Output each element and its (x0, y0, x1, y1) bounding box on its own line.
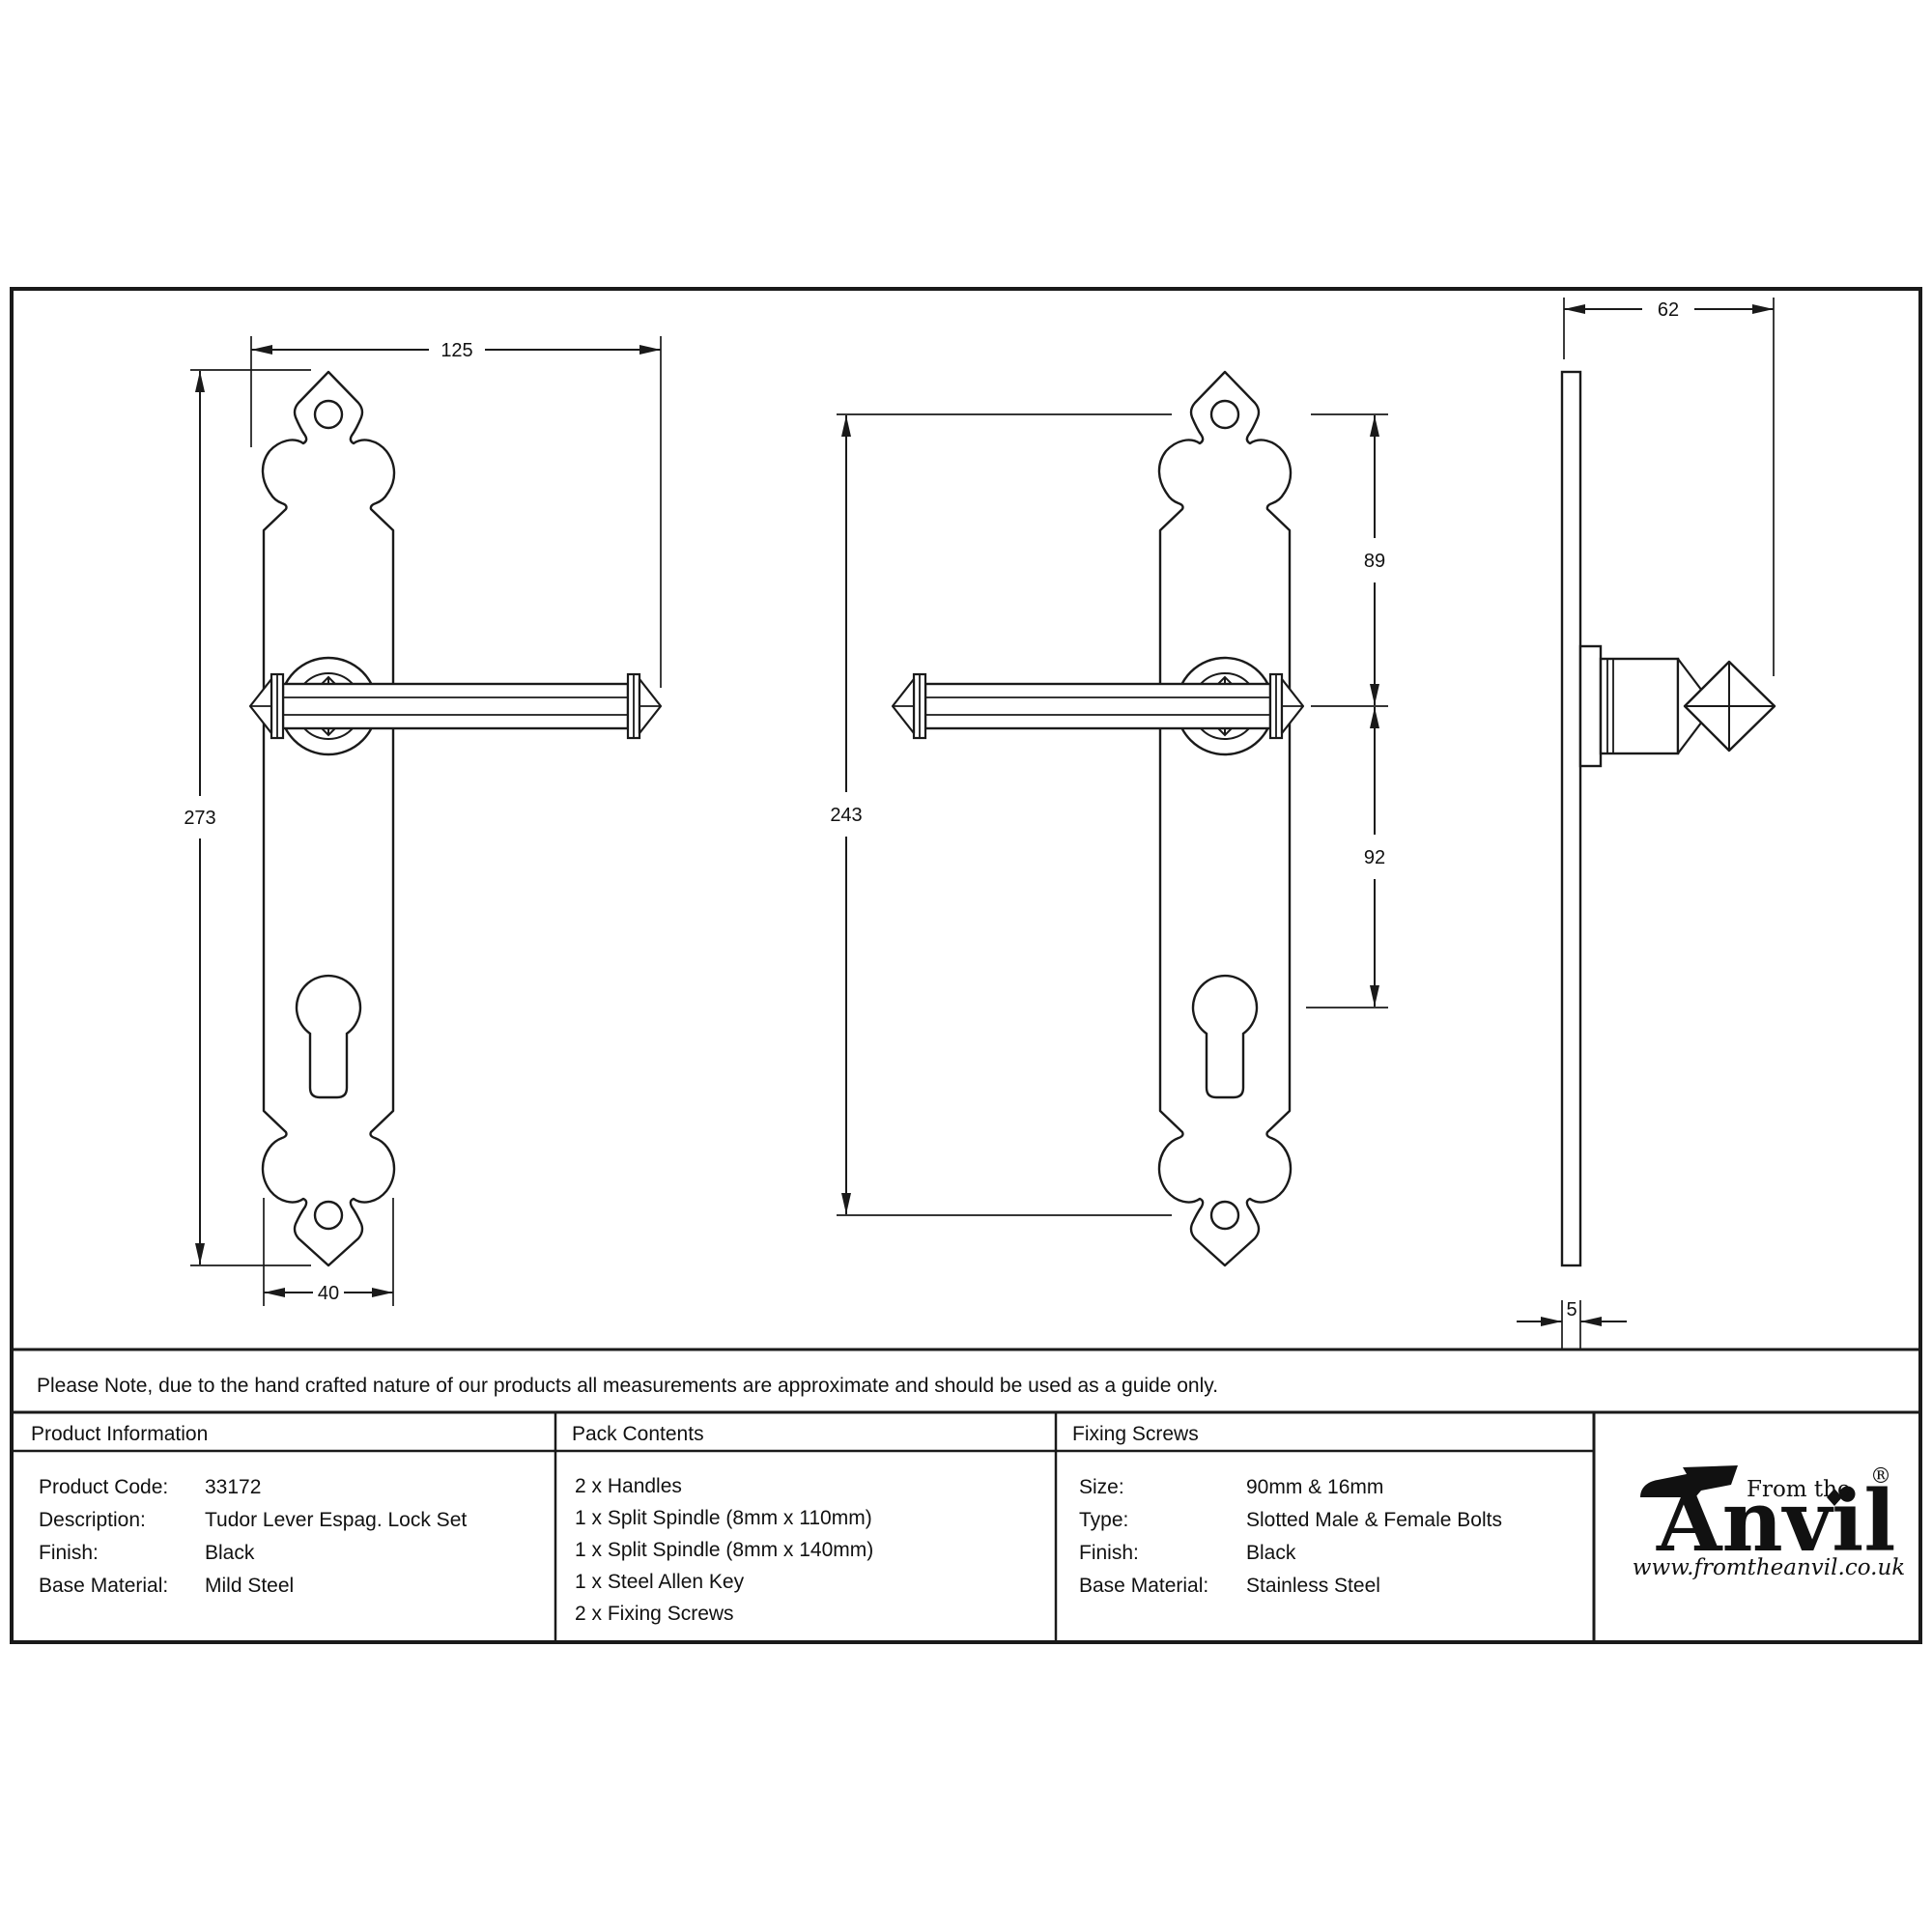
front-view-backplate (263, 372, 394, 1265)
technical-drawing-sheet: 125 273 40 (0, 0, 1932, 1932)
row-label: Product Code: (39, 1476, 168, 1498)
row-value: 33172 (205, 1476, 261, 1498)
product-information-section: Product Information Product Code: 33172 … (31, 1423, 467, 1597)
product-spec-sheet: 125 273 40 (0, 0, 1932, 1932)
dimension-spindle-to-keyhole: 92 (1364, 847, 1385, 868)
pack-item: 1 x Split Spindle (8mm x 110mm) (575, 1507, 872, 1529)
brand-website: www.fromtheanvil.co.uk (1633, 1555, 1905, 1580)
row-label: Description: (39, 1509, 146, 1531)
dimension-top-to-spindle: 89 (1364, 551, 1385, 572)
side-view-drawing: 62 5 (1517, 298, 1775, 1349)
back-view-dimensions (837, 414, 1388, 1215)
row-value: Stainless Steel (1246, 1575, 1380, 1597)
brand-logo: Anvil From the ® www.fromtheanvil.co.uk (1633, 1464, 1905, 1580)
front-view-dimensions (190, 336, 661, 1306)
section-title: Product Information (31, 1423, 208, 1445)
row-value: Black (205, 1542, 255, 1564)
row-value: 90mm & 16mm (1246, 1476, 1383, 1498)
row-value: Black (1246, 1542, 1296, 1564)
note-row: Please Note, due to the hand crafted nat… (12, 1350, 1920, 1397)
measurement-note: Please Note, due to the hand crafted nat… (37, 1375, 1218, 1397)
row-label: Base Material: (39, 1575, 168, 1597)
pack-item: 1 x Split Spindle (8mm x 140mm) (575, 1539, 873, 1561)
fixing-screws-section: Fixing Screws Size: 90mm & 16mm Type: Sl… (1072, 1423, 1502, 1597)
dimension-fixing-centres: 243 (830, 805, 862, 826)
row-label: Finish: (1079, 1542, 1139, 1564)
dimension-plate-thickness: 5 (1566, 1299, 1577, 1321)
back-view-backplate (1159, 372, 1291, 1265)
dimension-projection: 62 (1658, 299, 1679, 321)
registered-trademark-icon: ® (1870, 1464, 1891, 1489)
section-title: Pack Contents (572, 1423, 704, 1445)
row-value: Slotted Male & Female Bolts (1246, 1509, 1502, 1531)
brand-tagline: From the (1747, 1477, 1851, 1502)
side-view-backplate (1562, 372, 1580, 1265)
side-view-handle (1580, 646, 1775, 766)
pack-item: 2 x Handles (575, 1475, 682, 1497)
pack-item: 2 x Fixing Screws (575, 1603, 734, 1625)
front-view-drawing: 125 273 40 (184, 336, 661, 1306)
dimension-plate-height: 273 (184, 808, 215, 829)
dimension-handle-length: 125 (440, 340, 472, 361)
back-view-lever-handle (893, 658, 1303, 754)
row-label: Base Material: (1079, 1575, 1208, 1597)
pack-contents-section: Pack Contents 2 x Handles 1 x Split Spin… (572, 1423, 873, 1625)
front-view-lever-handle (250, 658, 661, 754)
pack-item: 1 x Steel Allen Key (575, 1571, 745, 1593)
spec-table: Product Information Product Code: 33172 … (12, 1412, 1920, 1642)
dimension-plate-width: 40 (318, 1283, 339, 1304)
row-label: Size: (1079, 1476, 1124, 1498)
back-view-drawing: 243 89 92 (830, 372, 1388, 1265)
row-value: Tudor Lever Espag. Lock Set (205, 1509, 467, 1531)
row-label: Finish: (39, 1542, 99, 1564)
row-value: Mild Steel (205, 1575, 294, 1597)
row-label: Type: (1079, 1509, 1128, 1531)
side-view-dimensions (1517, 298, 1774, 1349)
section-title: Fixing Screws (1072, 1423, 1199, 1445)
